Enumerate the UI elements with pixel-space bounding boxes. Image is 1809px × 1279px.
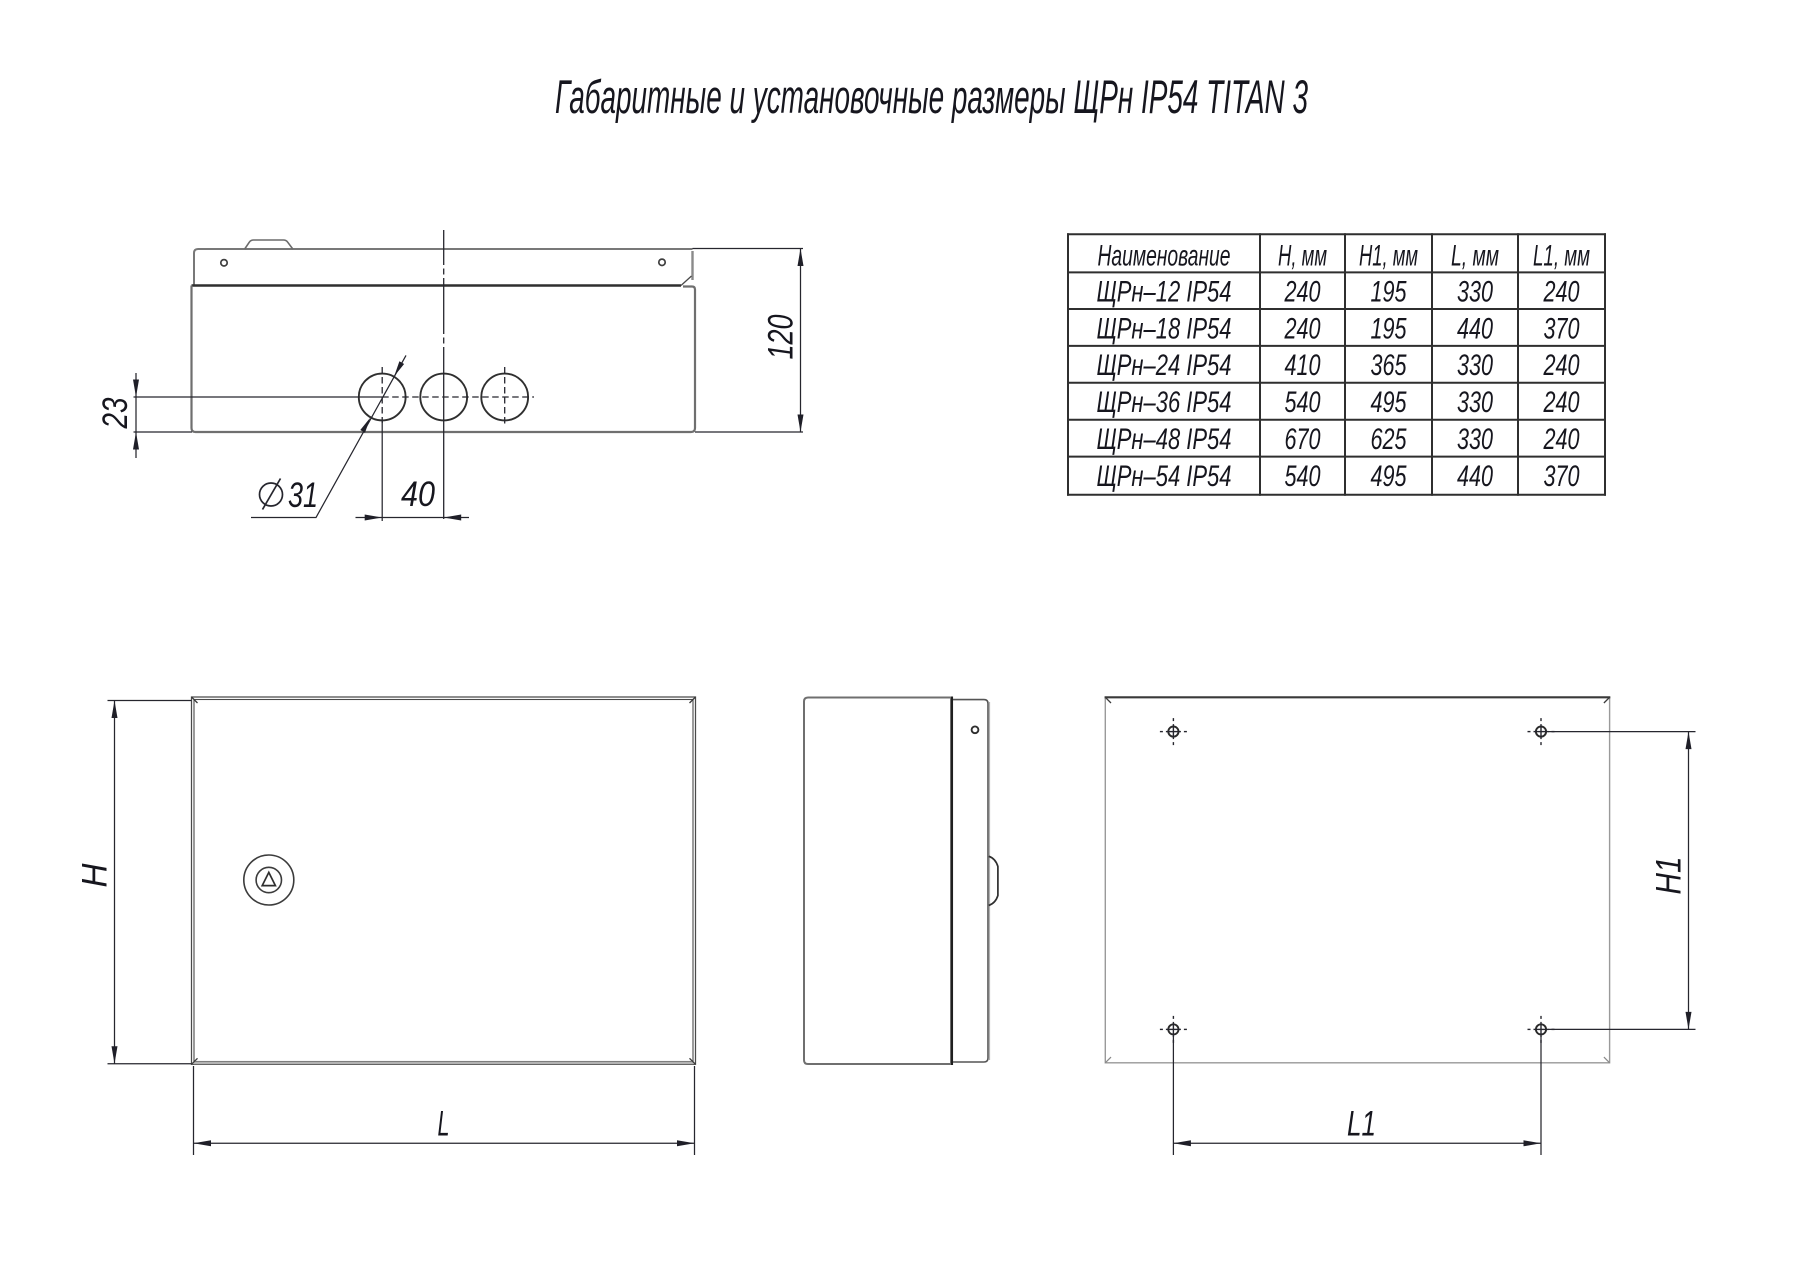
svg-text:240: 240 — [1284, 276, 1321, 309]
svg-text:L1: L1 — [1347, 1105, 1376, 1144]
svg-text:330: 330 — [1457, 349, 1493, 382]
svg-text:ЩРн–54 IP54: ЩРн–54 IP54 — [1097, 460, 1232, 493]
svg-text:540: 540 — [1285, 386, 1321, 419]
svg-text:370: 370 — [1544, 460, 1580, 493]
svg-text:40: 40 — [401, 475, 435, 514]
svg-text:330: 330 — [1457, 276, 1493, 309]
svg-text:440: 440 — [1457, 460, 1493, 493]
svg-text:625: 625 — [1371, 423, 1407, 456]
svg-text:23: 23 — [96, 397, 135, 429]
svg-text:31: 31 — [288, 476, 318, 515]
svg-text:495: 495 — [1371, 386, 1407, 419]
svg-text:H, мм: H, мм — [1278, 240, 1327, 273]
svg-text:120: 120 — [762, 314, 801, 359]
svg-text:195: 195 — [1371, 276, 1407, 309]
svg-text:240: 240 — [1543, 386, 1580, 419]
svg-text:H1, мм: H1, мм — [1359, 240, 1418, 273]
svg-text:330: 330 — [1457, 423, 1493, 456]
svg-text:L, мм: L, мм — [1451, 240, 1499, 273]
svg-text:440: 440 — [1457, 312, 1493, 345]
svg-text:H1: H1 — [1650, 857, 1689, 895]
svg-text:ЩРн–12 IP54: ЩРн–12 IP54 — [1097, 276, 1232, 309]
svg-text:ЩРн–24 IP54: ЩРн–24 IP54 — [1097, 349, 1232, 382]
svg-text:365: 365 — [1371, 349, 1407, 382]
svg-text:ЩРн–36 IP54: ЩРн–36 IP54 — [1097, 386, 1232, 419]
svg-text:495: 495 — [1371, 460, 1407, 493]
svg-text:370: 370 — [1544, 312, 1580, 345]
svg-text:410: 410 — [1285, 349, 1321, 382]
svg-text:540: 540 — [1285, 460, 1321, 493]
svg-text:240: 240 — [1284, 312, 1321, 345]
svg-text:Наименование: Наименование — [1098, 240, 1231, 273]
svg-text:L: L — [438, 1105, 450, 1144]
svg-text:670: 670 — [1285, 423, 1321, 456]
svg-text:240: 240 — [1543, 349, 1580, 382]
svg-text:240: 240 — [1543, 276, 1580, 309]
svg-text:330: 330 — [1457, 386, 1493, 419]
svg-text:240: 240 — [1543, 423, 1580, 456]
svg-text:ЩРн–48 IP54: ЩРн–48 IP54 — [1097, 423, 1232, 456]
svg-text:L1, мм: L1, мм — [1533, 240, 1590, 273]
svg-text:H: H — [76, 863, 115, 888]
svg-text:ЩРн–18 IP54: ЩРн–18 IP54 — [1097, 312, 1232, 345]
svg-text:Габаритные и установочные разм: Габаритные и установочные размеры ЩРн IP… — [555, 70, 1308, 123]
svg-text:195: 195 — [1371, 312, 1407, 345]
